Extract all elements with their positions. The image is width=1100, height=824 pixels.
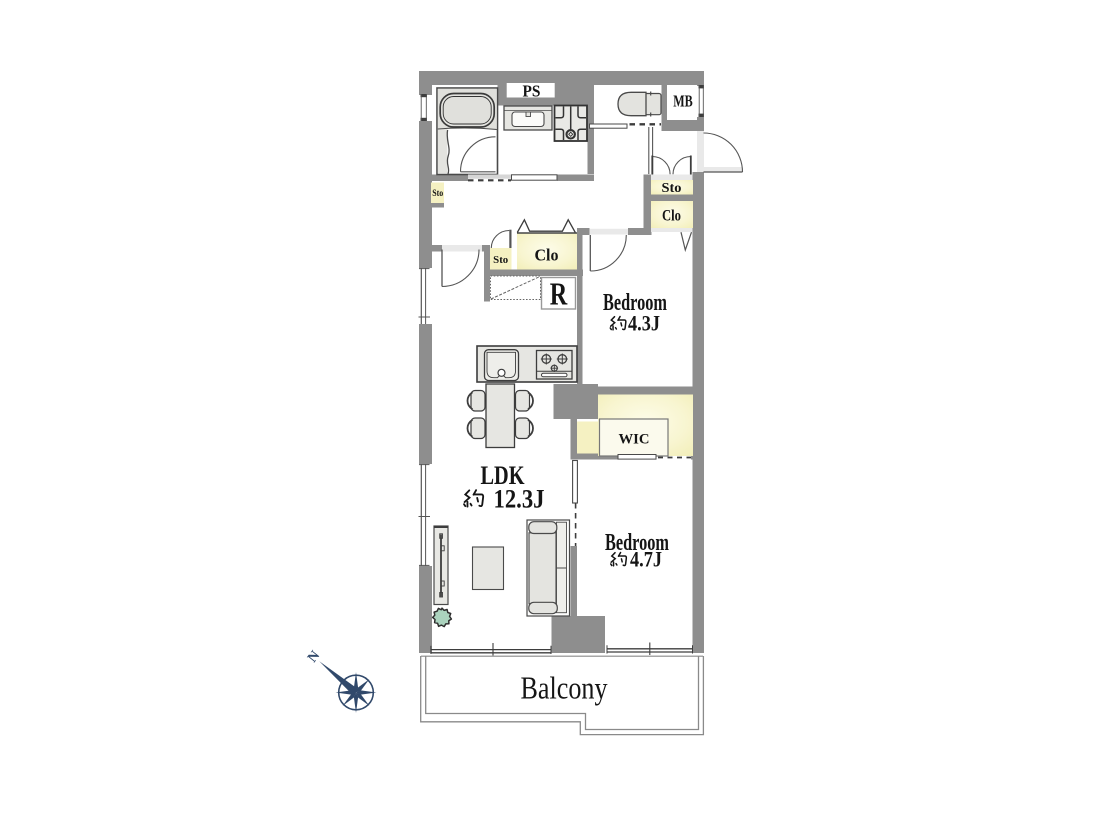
svg-text:Sto: Sto (493, 255, 508, 266)
svg-text:Clo: Clo (662, 208, 681, 225)
svg-text:4.7J: 4.7J (630, 547, 662, 572)
svg-text:4.3J: 4.3J (628, 311, 660, 336)
svg-text:MB: MB (673, 91, 693, 110)
svg-text:Clo: Clo (535, 246, 559, 265)
svg-text:WIC: WIC (619, 432, 650, 448)
svg-text:Sto: Sto (432, 189, 443, 199)
svg-text:Sto: Sto (662, 181, 682, 196)
svg-text:Balcony: Balcony (521, 669, 608, 705)
svg-text:12.3J: 12.3J (494, 484, 545, 514)
svg-text:PS: PS (523, 81, 541, 100)
svg-text:R: R (550, 276, 568, 312)
